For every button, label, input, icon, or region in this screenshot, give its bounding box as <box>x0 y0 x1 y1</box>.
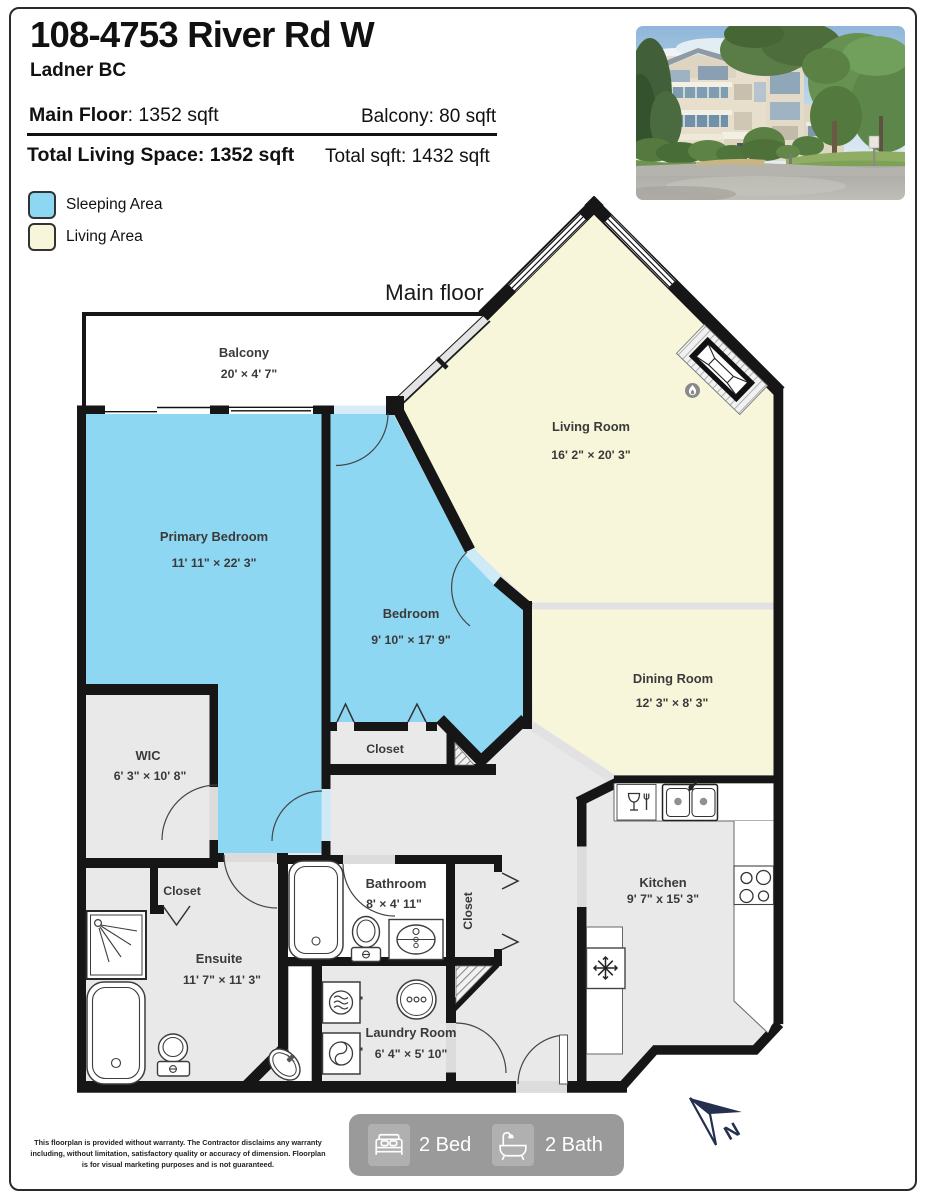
svg-text:N: N <box>720 1119 744 1145</box>
svg-text:11' 7" × 11' 3": 11' 7" × 11' 3" <box>183 973 261 987</box>
svg-text:9' 7" x 15' 3": 9' 7" x 15' 3" <box>627 892 699 906</box>
svg-text:6' 4" × 5' 10": 6' 4" × 5' 10" <box>375 1047 448 1061</box>
svg-text:Laundry Room: Laundry Room <box>366 1025 457 1040</box>
svg-text:Closet: Closet <box>461 892 475 930</box>
svg-text:16' 2" × 20' 3": 16' 2" × 20' 3" <box>551 448 631 462</box>
svg-text:Ensuite: Ensuite <box>196 951 243 966</box>
svg-text:12' 3" × 8' 3": 12' 3" × 8' 3" <box>636 696 709 710</box>
svg-text:Balcony: Balcony <box>219 345 270 360</box>
svg-text:Closet: Closet <box>163 884 201 898</box>
svg-text:Bathroom: Bathroom <box>366 876 427 891</box>
svg-text:WIC: WIC <box>135 748 160 763</box>
svg-text:6' 3" × 10' 8": 6' 3" × 10' 8" <box>114 769 187 783</box>
svg-text:Living Room: Living Room <box>552 419 630 434</box>
svg-text:Bedroom: Bedroom <box>383 606 440 621</box>
svg-text:8' × 4' 11": 8' × 4' 11" <box>366 897 422 911</box>
svg-text:11' 11" × 22' 3": 11' 11" × 22' 3" <box>172 556 257 570</box>
svg-text:Kitchen: Kitchen <box>639 875 686 890</box>
svg-text:9' 10" × 17' 9": 9' 10" × 17' 9" <box>371 633 451 647</box>
svg-text:Primary Bedroom: Primary Bedroom <box>160 529 268 544</box>
svg-text:20' × 4' 7": 20' × 4' 7" <box>221 367 278 381</box>
svg-text:Dining Room: Dining Room <box>633 671 713 686</box>
svg-text:Closet: Closet <box>366 742 404 756</box>
